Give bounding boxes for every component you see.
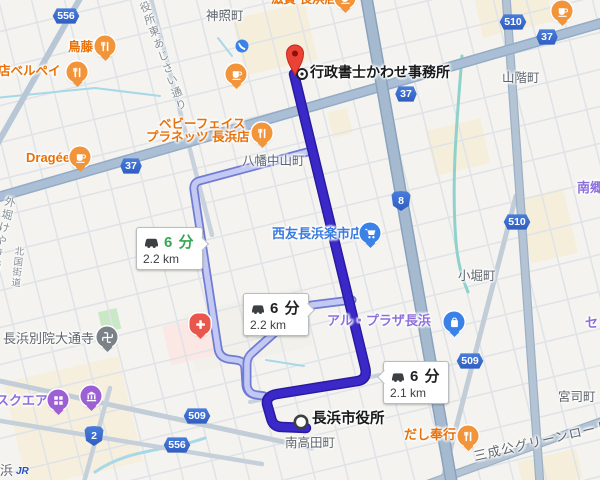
car-icon <box>390 370 406 382</box>
destination-label[interactable]: 行政書士かわせ事務所 <box>310 65 450 80</box>
restaurant-icon[interactable] <box>95 36 116 57</box>
poi-label[interactable]: アル・プラザ長浜 <box>327 314 431 328</box>
route-time: 6 分 <box>164 231 195 252</box>
origin-label[interactable]: 長浜市役所 <box>312 412 385 427</box>
town-label: 南高田町 <box>285 437 335 450</box>
map-canvas[interactable]: 神照町 山階町 八幡中山町 小堀町 南高田町 宮司町 長浜別院大通寺 役所東あじ… <box>0 0 600 480</box>
origin-circle-marker[interactable] <box>295 416 307 428</box>
route-time-badge-selected[interactable]: 6 分 2.2 km <box>136 227 203 270</box>
station-label: 浜 <box>0 464 13 478</box>
route-time: 6 分 <box>270 297 301 318</box>
cafe-icon[interactable] <box>70 147 91 168</box>
museum-icon[interactable] <box>81 386 102 407</box>
route-distance: 2.1 km <box>390 386 441 400</box>
poi-label[interactable]: 鳥藤 <box>68 41 93 54</box>
shopping-bag-icon[interactable] <box>444 312 465 333</box>
town-label: 山階町 <box>502 72 540 85</box>
phone-icon <box>236 40 249 53</box>
town-label: 神照町 <box>206 10 244 23</box>
cafe-icon[interactable] <box>552 1 573 22</box>
route-distance: 2.2 km <box>250 318 301 332</box>
temple-manji-icon[interactable] <box>97 327 118 348</box>
poi-label[interactable]: プラネッツ 長浜店 <box>146 131 249 144</box>
cafe-icon[interactable] <box>226 64 247 85</box>
route-time: 6 分 <box>410 365 441 386</box>
poi-label[interactable]: 滋賀 長浜店 <box>271 0 337 6</box>
restaurant-icon[interactable] <box>67 62 88 83</box>
temple-label: 長浜別院大通寺 <box>3 332 94 346</box>
poi-label[interactable]: Dragée <box>26 151 70 165</box>
shopping-cart-icon[interactable] <box>360 223 381 244</box>
car-icon <box>143 235 160 248</box>
route-time-badge[interactable]: 6 分 2.1 km <box>383 361 449 404</box>
hospital-icon[interactable] <box>190 314 211 335</box>
town-label: 宮司町 <box>558 391 596 404</box>
destination-ring-icon <box>297 69 307 79</box>
poi-label: セ <box>585 316 598 330</box>
route-distance: 2.2 km <box>143 252 195 266</box>
poi-label[interactable]: 店ベルペイ <box>0 65 61 78</box>
restaurant-icon[interactable] <box>252 123 273 144</box>
jr-logo-icon: JR <box>16 466 29 477</box>
restaurant-icon[interactable] <box>458 426 479 447</box>
blocks-icon[interactable] <box>48 390 69 411</box>
car-icon <box>250 302 266 314</box>
poi-label[interactable]: スクエア <box>0 394 48 408</box>
poi-label: 南郷 <box>577 181 600 195</box>
town-label: 小堀町 <box>458 270 496 283</box>
route-time-badge[interactable]: 6 分 2.2 km <box>243 293 309 336</box>
poi-label[interactable]: だし奉行 <box>404 428 456 442</box>
poi-label[interactable]: 西友長浜楽市店 <box>272 227 363 241</box>
town-label: 八幡中山町 <box>242 155 305 168</box>
